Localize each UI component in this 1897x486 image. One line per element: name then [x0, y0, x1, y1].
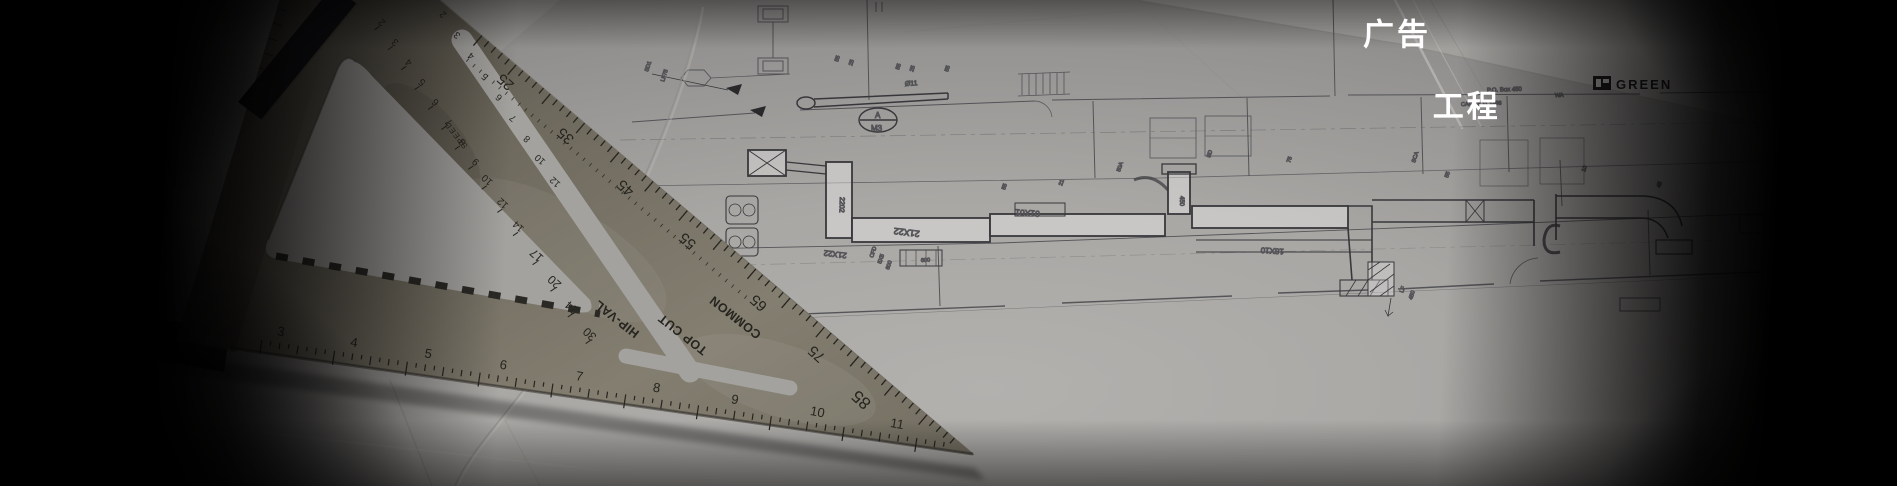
micro-label: 450: [1408, 290, 1417, 301]
micro-label: LF: [1399, 285, 1407, 294]
duct-label: 21X22: [823, 248, 848, 260]
micro-label: 55: [944, 65, 952, 73]
hero-banner: 21X2221X2201X0118X102202Ø114506005525552…: [0, 0, 1897, 486]
photo-scene: 21X2221X2201X0118X102202Ø114506005525552…: [0, 0, 1897, 486]
bottom-inch-number: 11: [889, 415, 905, 432]
vav-boxes: [758, 2, 882, 74]
duct-label: 450: [1178, 196, 1184, 207]
duct-label: 2202: [837, 197, 845, 213]
sheet-print: WA: [1555, 93, 1564, 99]
tag-leader: [711, 74, 790, 78]
micro-label: 55: [895, 63, 903, 71]
bottom-inch-number: 10: [809, 403, 826, 420]
logo-text: GREEN: [1616, 77, 1672, 92]
micro-label: SCA: [1411, 151, 1420, 164]
micro-label: SD1: [644, 61, 653, 73]
flow-arrow: [750, 106, 766, 117]
micro-label: 5X5: [877, 253, 886, 264]
duct-label: 600: [921, 258, 930, 264]
flow-arrow: [726, 84, 742, 95]
banner-title-line2: 工程: [1433, 89, 1501, 124]
micro-label: 600: [885, 260, 894, 271]
under-sheet-corner: [1140, 0, 1897, 152]
micro-label: 25: [909, 65, 917, 73]
duct-label: Ø11: [905, 80, 918, 88]
micro-label: 50A: [1116, 161, 1125, 172]
micro-label: SD: [1206, 149, 1214, 158]
duct-label: 18X10: [1260, 245, 1284, 256]
round-duct: [652, 74, 948, 109]
micro-label: 25: [848, 59, 856, 67]
logo-word: GREEN: [1616, 77, 1672, 92]
micro-label: 55: [1001, 183, 1009, 191]
sheet-logo: GREEN: [1593, 76, 1672, 92]
banner-title: 广告 工程: [1363, 17, 1501, 125]
micro-label: 45: [1656, 181, 1664, 189]
duct-label: 01X01: [1015, 207, 1040, 219]
micro-label: CFD: [869, 246, 878, 259]
micro-label: 75: [1286, 156, 1294, 164]
tag-letter: M3: [871, 124, 883, 133]
plan-centerline: [620, 120, 1897, 140]
micro-label: LF75: [660, 69, 670, 83]
micro-label: 55: [834, 55, 842, 63]
stair-grille: [1018, 72, 1070, 96]
micro-label: 55: [1444, 171, 1452, 179]
micro-label: 21: [1058, 179, 1066, 187]
tag-letter: A: [875, 111, 881, 120]
banner-title-line1: 广告: [1363, 17, 1431, 52]
